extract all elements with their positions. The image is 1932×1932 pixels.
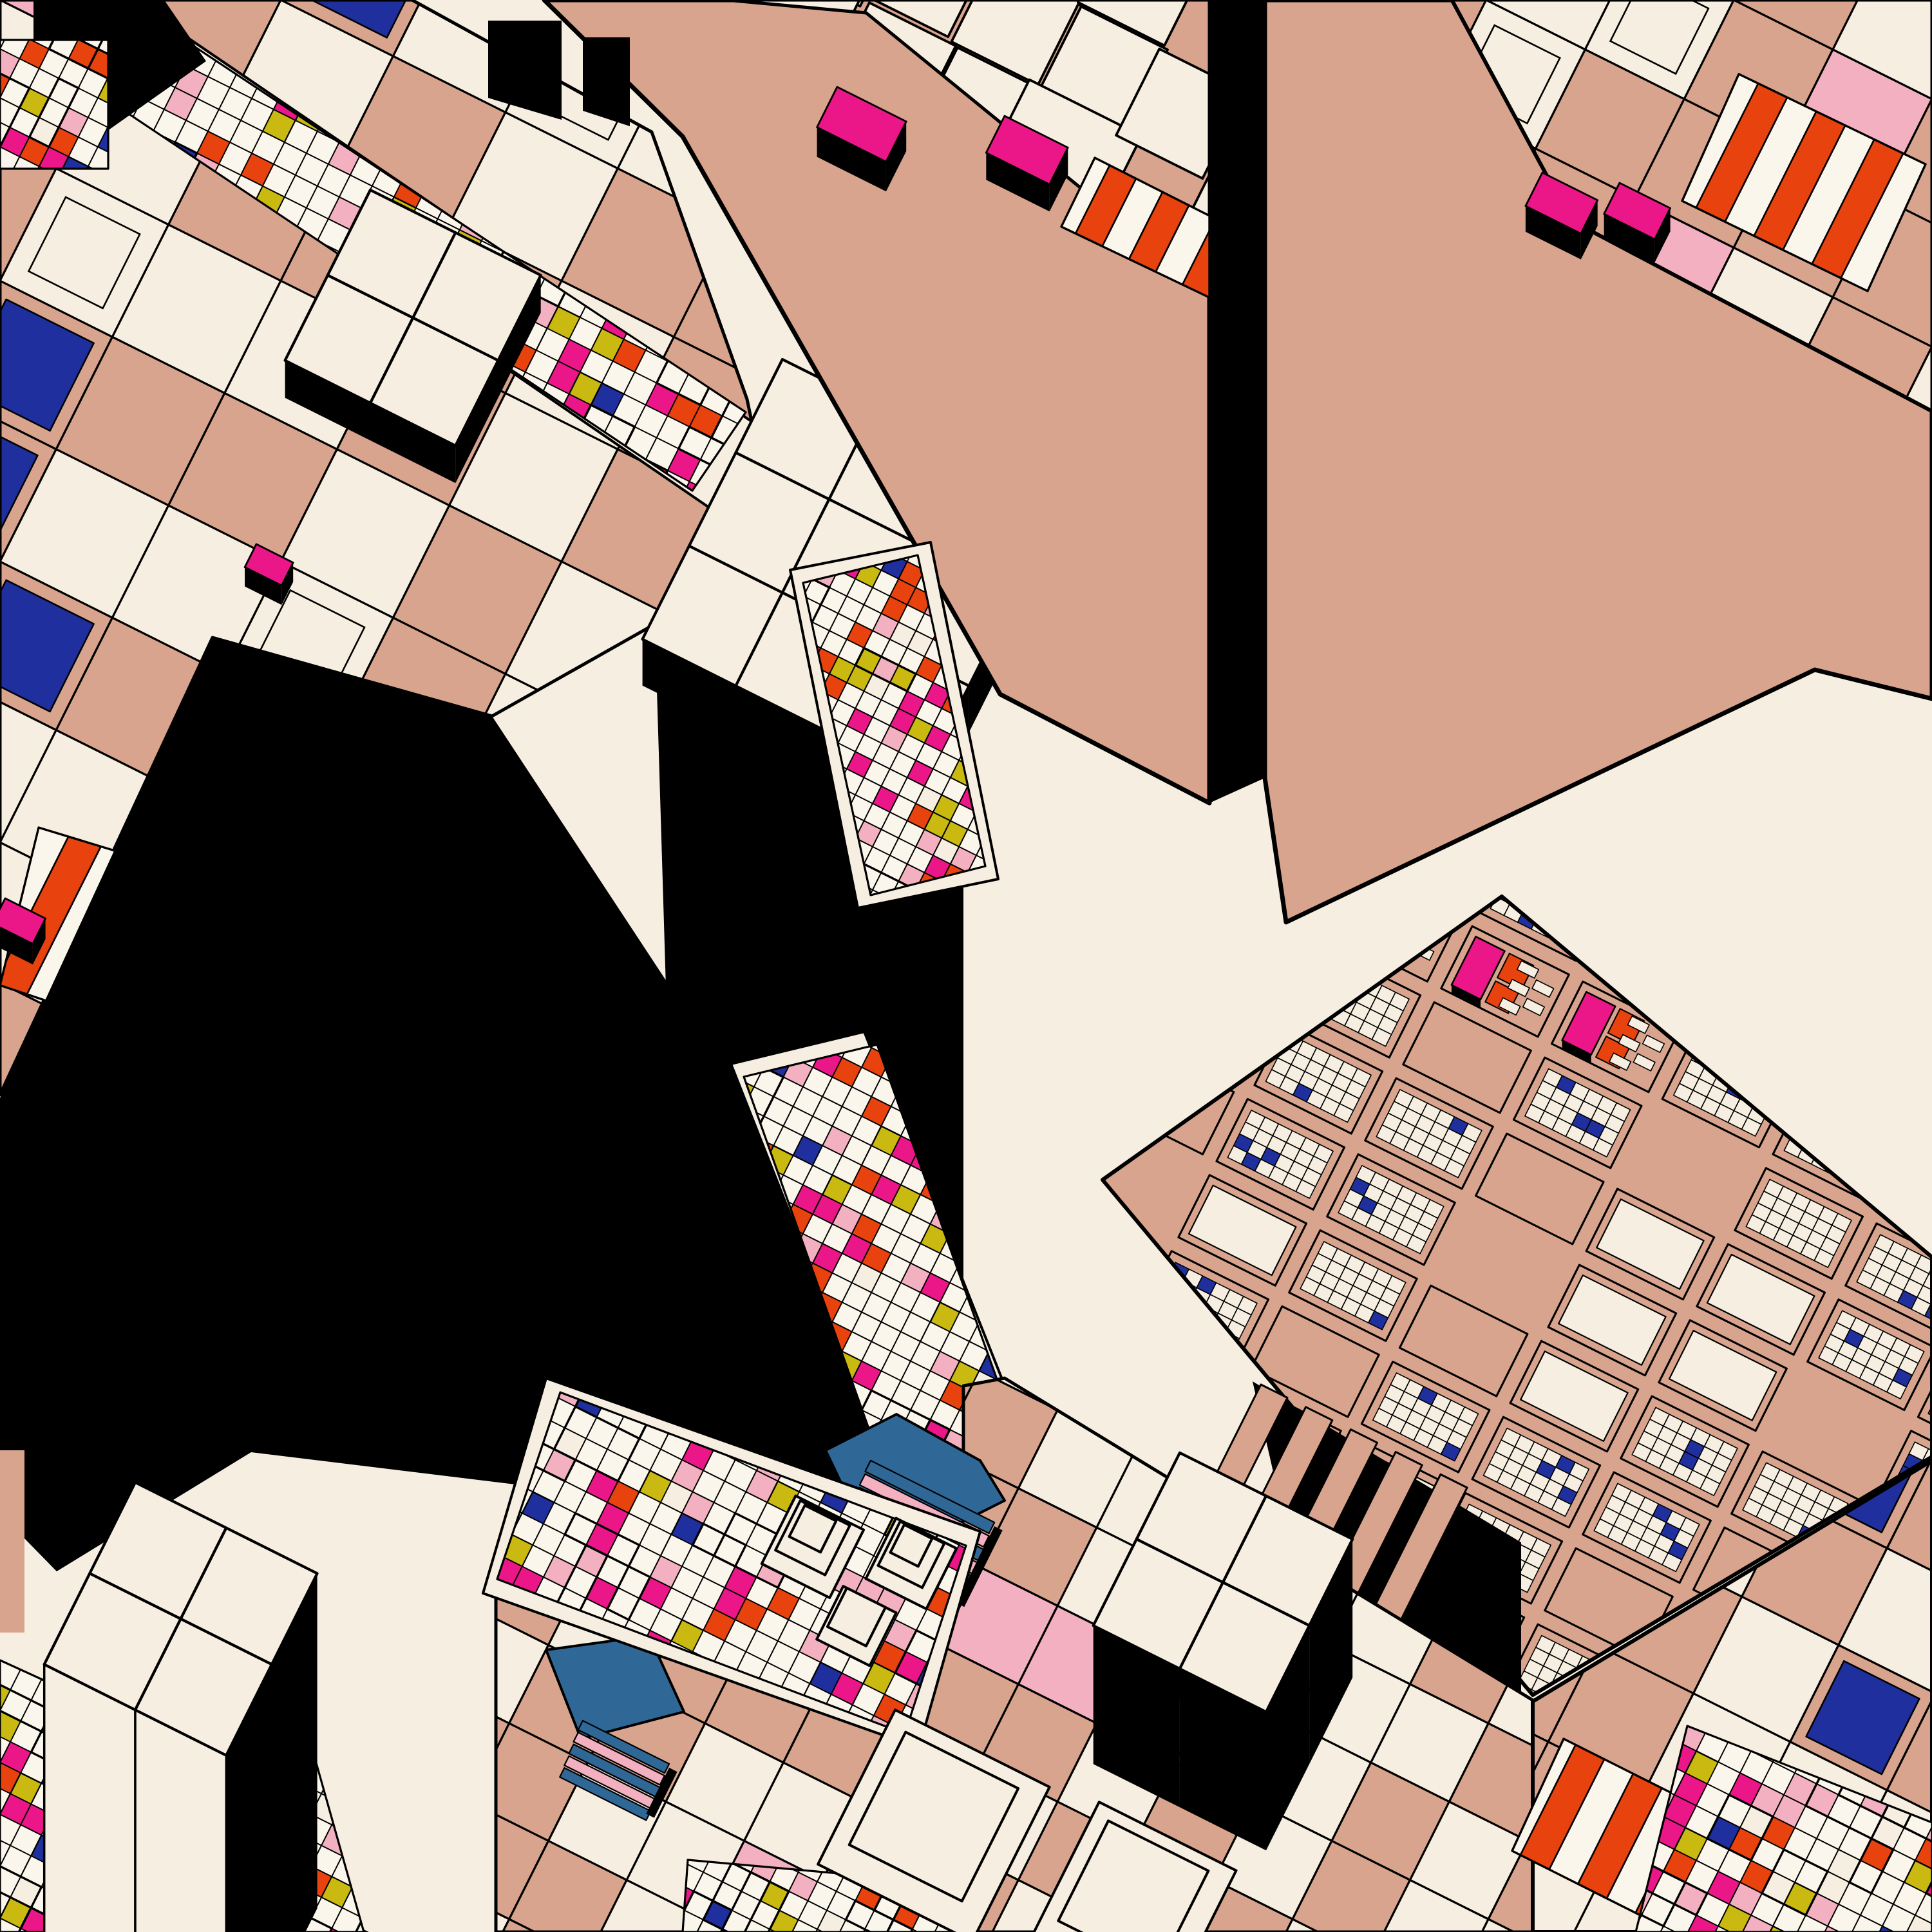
black-sliver bbox=[1209, 0, 1265, 803]
generative-artwork-isometric-city bbox=[0, 0, 1932, 1932]
salmon-pillar-left bbox=[0, 1450, 24, 1633]
black-tower-top-2 bbox=[583, 37, 630, 126]
artwork bbox=[0, 0, 1932, 1932]
